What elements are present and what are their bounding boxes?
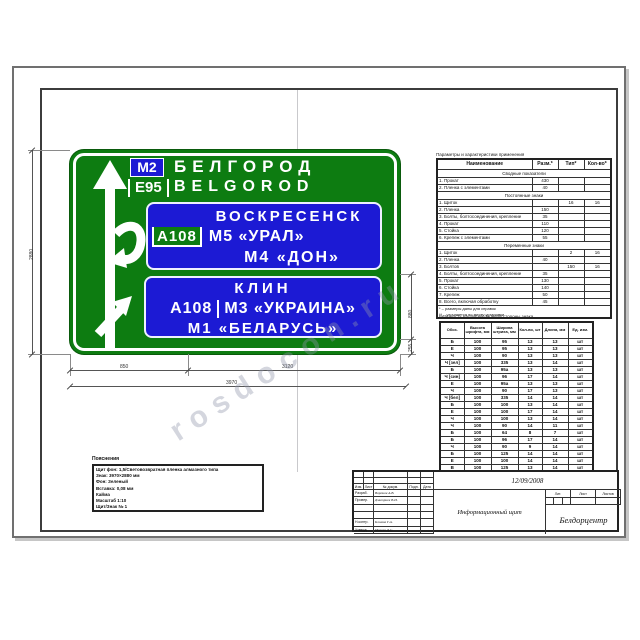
staff-cell — [421, 512, 434, 519]
table-row: Б100951313шт — [440, 338, 593, 345]
panel1-city: ВОСКРЕСЕНСК — [148, 206, 380, 226]
table-row: Ч [бел]1003351414шт — [440, 394, 593, 401]
dim-seg1-label: 850 — [120, 364, 128, 370]
panel2-route2: М1 «БЕЛАРУСЬ» — [146, 319, 380, 338]
staff-cell: Михеев Д.С. — [374, 527, 408, 534]
table-row: Ч1001001314шт — [440, 415, 593, 422]
spec-table: НаименованиеРазм.*Тип*Кол-во*Сводные пок… — [436, 158, 612, 319]
lit-mini-cell — [554, 498, 562, 505]
table-row: 6. Крепеж с элементами55 — [437, 235, 611, 242]
section-band-row: Переменные знаки — [437, 242, 611, 250]
table-row: 6. Стойка140 — [437, 285, 611, 292]
lit-value-cell — [596, 498, 621, 505]
lit-value-cell — [571, 498, 596, 505]
lit-header-cell: Лит. — [546, 490, 571, 498]
table-row: 3. Болты, болтосоединения, крепление35 — [437, 214, 611, 221]
euro-route-e95: Е95 — [128, 179, 169, 197]
staff-cell — [421, 519, 434, 526]
staff-cell — [421, 490, 434, 497]
extension-line — [400, 354, 401, 376]
table-header-row: Обоз.Высота шрифта, ммШирина штриха, ммК… — [440, 322, 593, 338]
panel1-route-text: М5 «УРАЛ» — [209, 228, 305, 246]
staff-cell — [408, 490, 421, 497]
staff-cell — [374, 505, 408, 512]
table-row: 5. Стойка120 — [437, 228, 611, 235]
staff-cell: Разраб. — [354, 490, 374, 497]
dim-line-bottom2 — [70, 386, 406, 387]
staff-cell — [408, 527, 421, 534]
table-row: Б100961714шт — [440, 436, 593, 443]
drawing-sheet: М2 БЕЛГОРОД Е95 BELGOROD ВОСКРЕСЕНСК А10… — [12, 66, 626, 538]
staff-cell — [354, 505, 374, 512]
note-line: Щит/Знак № 1 — [96, 504, 260, 510]
title-block: Изм.Лист№ докум.Подп.Дата 12/09/2008 Раз… — [352, 470, 619, 532]
table-row: 1. Прокат430 — [437, 178, 611, 185]
panel2-route-text: М3 «УКРАИНА» — [224, 300, 356, 318]
table-row: Ч100901313шт — [440, 352, 593, 359]
extension-line — [28, 150, 70, 151]
section-band-row: Постоянные знаки — [437, 192, 611, 200]
route-chip-a108: А108 — [152, 227, 202, 247]
blue-panel-voskresensk: ВОСКРЕСЕНСК А108 М5 «УРАЛ» М4 «ДОН» — [146, 202, 382, 270]
table-row: Б1001001314шт — [440, 401, 593, 408]
table-row: 1. Щиток1616 — [437, 200, 611, 207]
staff-cell — [408, 512, 421, 519]
table-row: Ч [син]100961714шт — [440, 373, 593, 380]
notes-title: Пояснения — [92, 456, 119, 462]
panel2-city: КЛИН — [146, 279, 380, 298]
road-sign: М2 БЕЛГОРОД Е95 BELGOROD ВОСКРЕСЕНСК А10… — [70, 150, 400, 354]
extension-line — [188, 354, 189, 376]
dim-line-bottom1 — [70, 370, 400, 371]
lit-mini-cell — [563, 498, 571, 505]
staff-cell: Утверд. — [354, 527, 374, 534]
table-row: Ч [зел]1003351314шт — [440, 359, 593, 366]
dim-height-label: 2880 — [29, 249, 35, 260]
panel1-route2: М4 «ДОН» — [148, 248, 380, 268]
table-row: 7. Крепеж50 — [437, 292, 611, 299]
route-a108: А108 — [170, 300, 219, 318]
lit-header-cell: Лист — [571, 490, 596, 498]
extension-line — [28, 354, 70, 355]
table-row: Ч10090914шт — [440, 443, 593, 450]
table-row: Ч100901411шт — [440, 422, 593, 429]
table-row: Б1006487шт — [440, 429, 593, 436]
staff-cell — [374, 512, 408, 519]
table-row: 4. Болты, болтосоединения, крепление35 — [437, 271, 611, 278]
staff-cell — [421, 497, 434, 504]
table-row: 8. Всего, включая обработку45 — [437, 299, 611, 306]
staff-cell — [408, 519, 421, 526]
table-row: Б10095а1313шт — [440, 366, 593, 373]
table-header-row: НаименованиеРазм.*Тип*Кол-во* — [437, 159, 611, 170]
letters-table: Обоз.Высота шрифта, ммШирина штриха, ммК… — [439, 321, 594, 480]
organization-name: Белдорцентр — [546, 505, 621, 534]
city-name-en: BELGOROD — [174, 178, 314, 196]
table-row: Б1001251414шт — [440, 450, 593, 457]
staff-cell — [421, 527, 434, 534]
letters-table-title: Ведомость надписей лицевой стороны знака — [439, 314, 533, 319]
extension-line — [70, 354, 71, 376]
table-row: Е1001001714шт — [440, 408, 593, 415]
table-row: Ч100901713шт — [440, 387, 593, 394]
table-row: 3. Болтов15016 — [437, 264, 611, 271]
route-chip-m2: М2 — [130, 158, 164, 177]
staff-cell: Дмитриев В.И. — [374, 497, 408, 504]
dim-total-label: 3970 — [226, 380, 237, 386]
staff-cell: Провер. — [354, 497, 374, 504]
lit-header-cell: Листов — [596, 490, 621, 498]
dim-right-top-label: 880 — [408, 310, 414, 318]
blue-panel-klin: КЛИН А108 М3 «УКРАИНА» М1 «БЕЛАРУСЬ» — [144, 276, 382, 338]
staff-cell — [408, 497, 421, 504]
table-row: Е1001001414шт — [440, 457, 593, 464]
staff-cell: Воронов А.В. — [374, 490, 408, 497]
city-name-ru: БЕЛГОРОД — [174, 157, 316, 177]
table-row: Е100951313шт — [440, 345, 593, 352]
staff-cell — [421, 505, 434, 512]
panel2-routes: А108 М3 «УКРАИНА» — [146, 298, 380, 319]
dim-seg2-label: 3120 — [282, 364, 293, 370]
spec-table-title: Параметры и характеристики применения — [436, 152, 524, 157]
doc-label: Информационный щит — [434, 490, 546, 534]
notes-box: Щит фон: 1,5/Световозвратная пленка алма… — [92, 464, 264, 512]
table-row: 2. Пленка с элементами40 — [437, 185, 611, 192]
panel1-routes: А108 М5 «УРАЛ» — [148, 226, 380, 248]
table-row: 1. Щиток216 — [437, 250, 611, 257]
doc-date: 12/09/2008 — [434, 472, 621, 490]
section-band-row: Сводные показатели — [437, 170, 611, 178]
table-row: 2. Пленка40 — [437, 257, 611, 264]
staff-cell — [354, 512, 374, 519]
dim-right-bottom-label: 255 — [408, 344, 414, 352]
lit-mini-cell — [546, 498, 554, 505]
staff-cell — [408, 505, 421, 512]
table-row: Е10095а1313шт — [440, 380, 593, 387]
table-row: 4. Прокат110 — [437, 221, 611, 228]
staff-cell: Климов Г.А. — [374, 519, 408, 526]
table-row: 2. Пленка150 — [437, 207, 611, 214]
table-row: 5. Прокат130 — [437, 278, 611, 285]
staff-cell: Н.контр. — [354, 519, 374, 526]
